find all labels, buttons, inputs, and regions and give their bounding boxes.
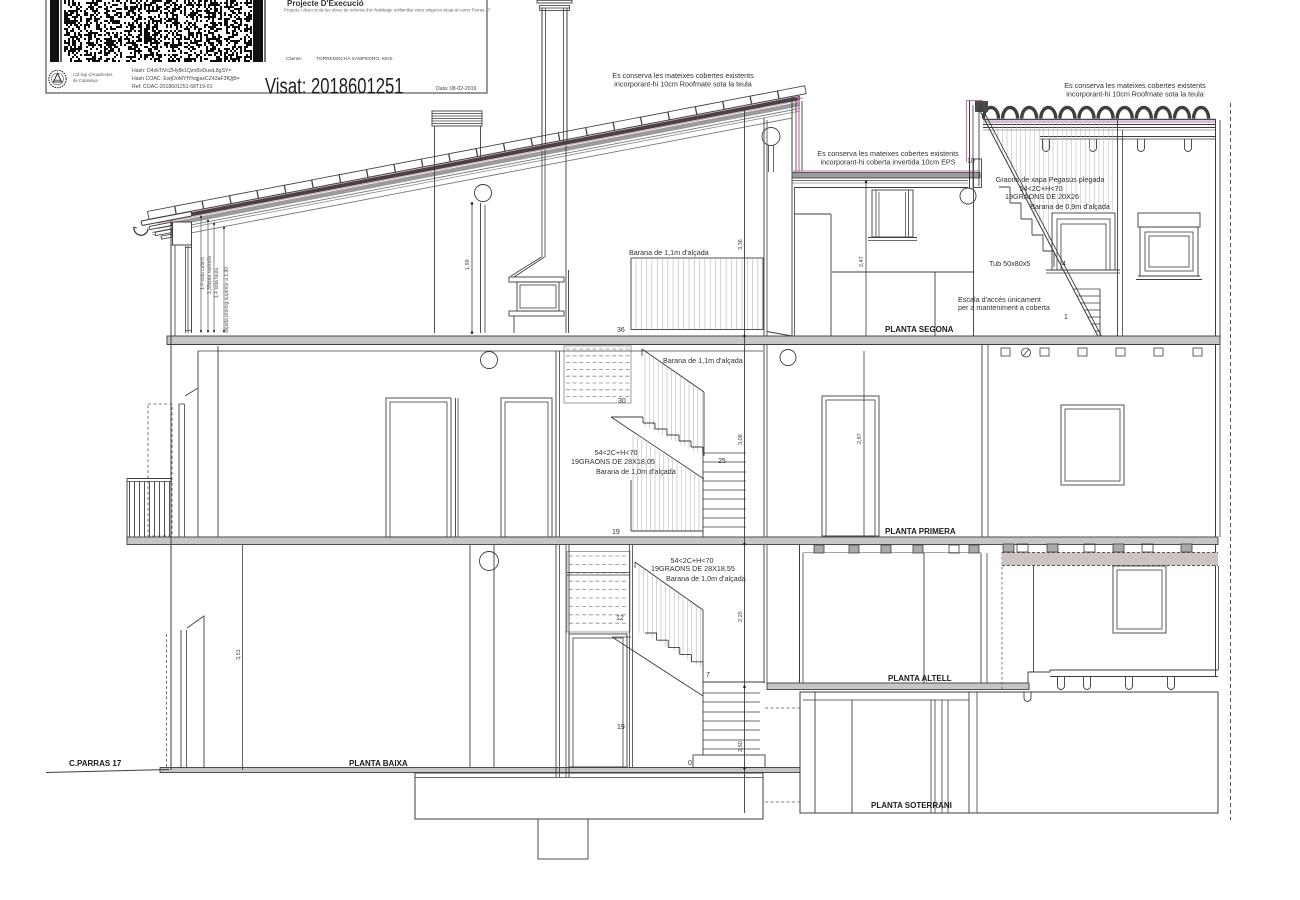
svg-text:2,50: 2,50 [738,741,744,752]
svg-text:7: 7 [706,672,710,679]
svg-text:1: 1 [1064,314,1068,321]
svg-text:Barana de 1,0m d'alçada: Barana de 1,0m d'alçada [666,574,746,583]
svg-text:Visat: 2018601251: Visat: 2018601251 [265,74,403,99]
svg-text:Graons de xapa Pegasus plegada: Graons de xapa Pegasus plegada [996,175,1105,184]
svg-text:Clients:: Clients: [286,56,302,62]
svg-text:1,35sota rastrells: 1,35sota rastrells [207,255,213,294]
svg-text:3,36: 3,36 [738,239,744,250]
svg-text:Data: 08-02-2019: Data: 08-02-2019 [436,86,476,92]
svg-text:30: 30 [618,398,626,405]
svg-text:incorporant-hi coberta inverti: incorporant-hi coberta invertida 10cm EP… [820,158,955,167]
svg-text:54<2C+H<70: 54<2C+H<70 [595,448,638,457]
svg-text:Hash: D4xkTiVcZHy8k1QznBvDuwL8: Hash: D4xkTiVcZHy8k1QznBvDuwL8gSY= [132,68,231,74]
svg-text:19GRAONS DE 20X26: 19GRAONS DE 20X26 [1005,192,1079,201]
svg-text:PLANTA ALTELL: PLANTA ALTELL [888,674,952,683]
svg-text:0: 0 [688,760,692,767]
svg-text:10: 10 [967,158,975,165]
svg-text:1,4 sota taula: 1,4 sota taula [214,268,220,298]
svg-text:Tub 50x80x5: Tub 50x80x5 [989,259,1030,268]
svg-text:Hash COAC: EwjOoMYfYhqjjaxCZ43: Hash COAC: EwjOoMYfYhqjjaxCZ43aF3fQjB= [132,76,240,82]
svg-text:3,51: 3,51 [236,649,242,660]
svg-text:12: 12 [616,615,624,622]
svg-text:Barana de 1,1m d'alçada: Barana de 1,1m d'alçada [663,356,743,365]
svg-text:1,99: 1,99 [465,259,471,270]
svg-text:Ref: COAC-2018601251-68T19-01: Ref: COAC-2018601251-68T19-01 [132,84,213,90]
svg-text:Barana de 1,1m d'alçada: Barana de 1,1m d'alçada [629,248,709,257]
svg-text:19GRAONS DE 28X18,55: 19GRAONS DE 28X18,55 [651,564,735,573]
svg-text:3,08: 3,08 [738,434,744,445]
svg-text:36: 36 [617,327,625,334]
svg-text:Barana de 1,0m d'alçada: Barana de 1,0m d'alçada [596,467,676,476]
svg-text:C.PARRAS 17: C.PARRAS 17 [69,759,122,768]
svg-text:PLANTA PRIMERA: PLANTA PRIMERA [885,527,956,536]
svg-text:25: 25 [718,458,726,465]
svg-text:Barana de 0,9m d'alçada: Barana de 0,9m d'alçada [1030,202,1110,211]
svg-text:Projecte i direcció de les obr: Projecte i direcció de les obres de refo… [284,8,491,13]
svg-text:per a manteniment a coberta: per a manteniment a coberta [958,303,1050,312]
svg-text:incorporant-hi 10cm Roofmate s: incorporant-hi 10cm Roofmate sota la teu… [1066,90,1203,99]
svg-text:alçada promig superior a 1,90: alçada promig superior a 1,90 [224,267,230,333]
svg-text:19: 19 [617,724,625,731]
svg-text:19: 19 [612,529,620,536]
svg-text:19GRAONS DE 28X18,05: 19GRAONS DE 28X18,05 [571,457,655,466]
svg-text:PLANTA BAIXA: PLANTA BAIXA [349,759,408,768]
svg-text:1,4 sota cabiró: 1,4 sota cabiró [200,257,206,290]
svg-text:4: 4 [1062,261,1066,268]
svg-text:Col·legi d'Arquitectes: Col·legi d'Arquitectes [73,72,112,77]
svg-text:TORREMOCHA SAMPEDRO, KIKE: TORREMOCHA SAMPEDRO, KIKE [316,56,393,62]
svg-text:incorporant-hi 10cm Roofmate s: incorporant-hi 10cm Roofmate sota la teu… [614,80,751,89]
svg-text:de Catalunya: de Catalunya [73,78,98,83]
svg-text:2,25: 2,25 [738,611,744,622]
svg-text:PLANTA SOTERRANI: PLANTA SOTERRANI [871,801,952,810]
svg-text:PLANTA SEGONA: PLANTA SEGONA [885,325,954,334]
svg-text:2,87: 2,87 [857,433,863,444]
svg-text:2,47: 2,47 [859,256,865,267]
